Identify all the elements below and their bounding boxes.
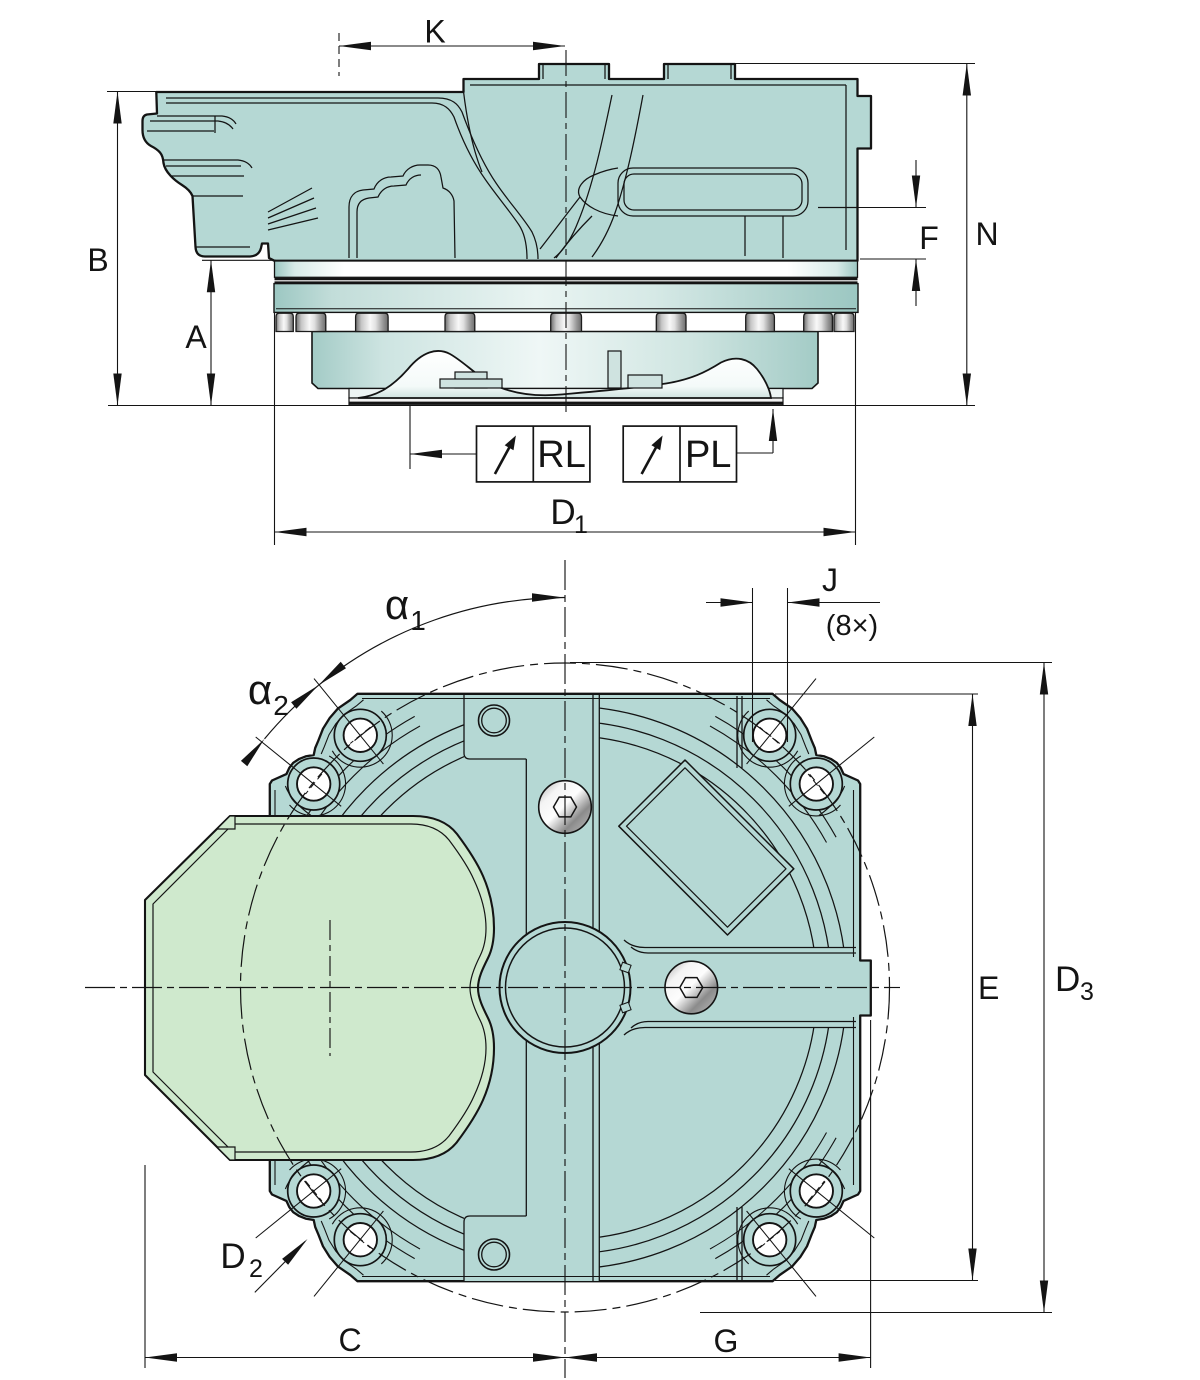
- svg-text:C: C: [338, 1322, 361, 1358]
- svg-text:1: 1: [410, 605, 426, 636]
- svg-text:N: N: [975, 216, 998, 252]
- svg-text:2: 2: [273, 690, 289, 721]
- svg-text:J: J: [822, 562, 838, 598]
- svg-text:(8×): (8×): [826, 610, 878, 642]
- svg-text:α: α: [248, 666, 272, 713]
- svg-text:3: 3: [1080, 978, 1094, 1006]
- svg-text:A: A: [185, 319, 207, 355]
- svg-text:E: E: [978, 970, 999, 1006]
- svg-text:B: B: [87, 242, 108, 278]
- svg-text:K: K: [424, 14, 445, 50]
- svg-text:D: D: [220, 1237, 245, 1276]
- svg-text:D: D: [1055, 960, 1080, 999]
- svg-text:2: 2: [249, 1255, 263, 1283]
- svg-text:F: F: [919, 220, 939, 256]
- svg-text:G: G: [714, 1323, 739, 1359]
- svg-text:RL: RL: [537, 434, 586, 476]
- svg-text:α: α: [385, 581, 409, 628]
- svg-text:PL: PL: [685, 434, 731, 476]
- svg-text:1: 1: [574, 511, 588, 539]
- svg-text:D: D: [550, 493, 575, 532]
